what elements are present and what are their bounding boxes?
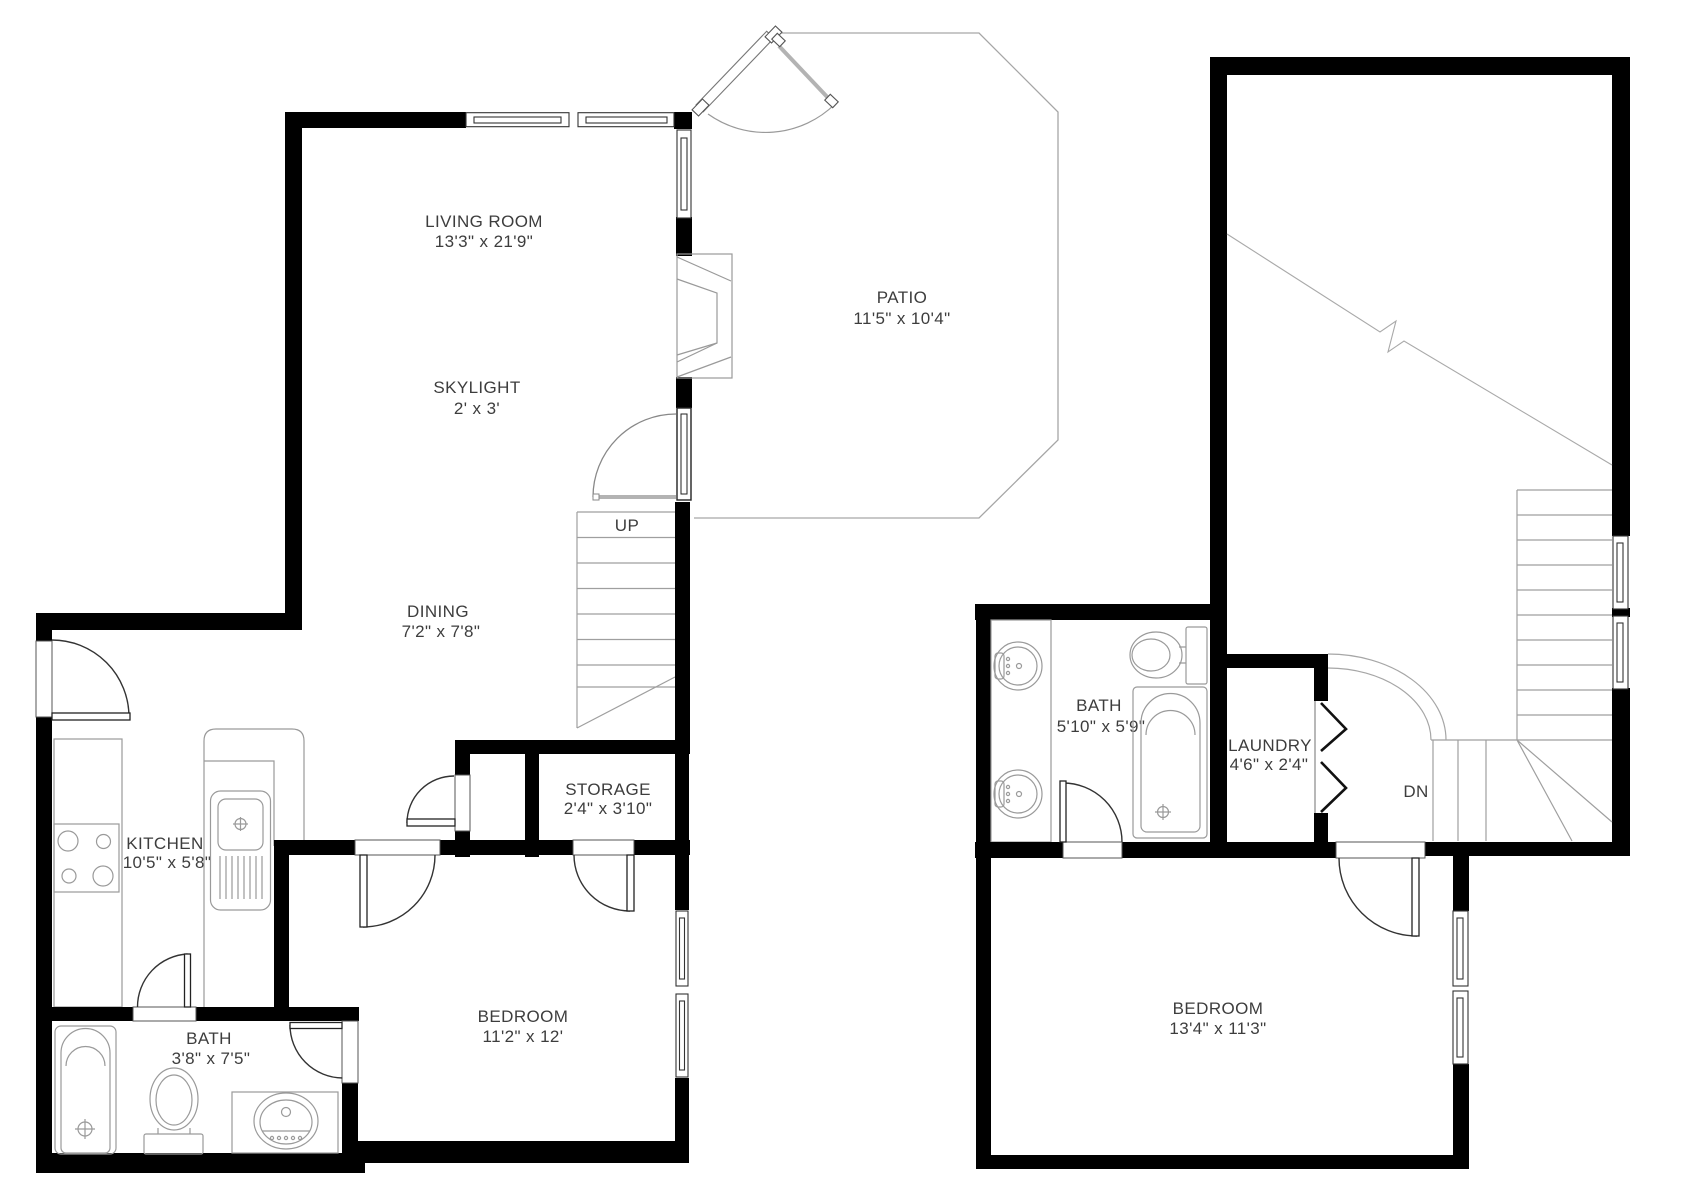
- svg-text:2' x 3': 2' x 3': [454, 399, 500, 418]
- svg-text:BATH: BATH: [186, 1029, 232, 1048]
- svg-text:13'4" x 11'3": 13'4" x 11'3": [1169, 1019, 1266, 1038]
- svg-text:DN: DN: [1403, 782, 1428, 801]
- svg-text:UP: UP: [615, 516, 639, 535]
- svg-text:BATH: BATH: [1076, 696, 1122, 715]
- svg-text:3'8" x 7'5": 3'8" x 7'5": [172, 1049, 251, 1068]
- svg-text:KITCHEN: KITCHEN: [126, 834, 203, 853]
- svg-text:LAUNDRY: LAUNDRY: [1228, 736, 1312, 755]
- svg-text:11'5" x 10'4": 11'5" x 10'4": [853, 309, 950, 328]
- svg-text:LIVING ROOM: LIVING ROOM: [425, 212, 543, 231]
- svg-text:BEDROOM: BEDROOM: [478, 1007, 569, 1026]
- svg-text:BEDROOM: BEDROOM: [1173, 999, 1264, 1018]
- svg-text:13'3" x 21'9": 13'3" x 21'9": [435, 232, 533, 251]
- svg-text:PATIO: PATIO: [877, 288, 928, 307]
- svg-text:4'6" x 2'4": 4'6" x 2'4": [1230, 755, 1309, 774]
- svg-text:5'10" x 5'9": 5'10" x 5'9": [1057, 717, 1146, 736]
- svg-text:10'5" x 5'8": 10'5" x 5'8": [123, 853, 212, 872]
- svg-text:DINING: DINING: [407, 602, 469, 621]
- svg-text:7'2" x 7'8": 7'2" x 7'8": [402, 622, 481, 641]
- svg-text:SKYLIGHT: SKYLIGHT: [433, 378, 520, 397]
- svg-text:2'4" x 3'10": 2'4" x 3'10": [564, 799, 653, 818]
- svg-text:11'2" x 12': 11'2" x 12': [483, 1027, 564, 1046]
- svg-text:STORAGE: STORAGE: [565, 780, 651, 799]
